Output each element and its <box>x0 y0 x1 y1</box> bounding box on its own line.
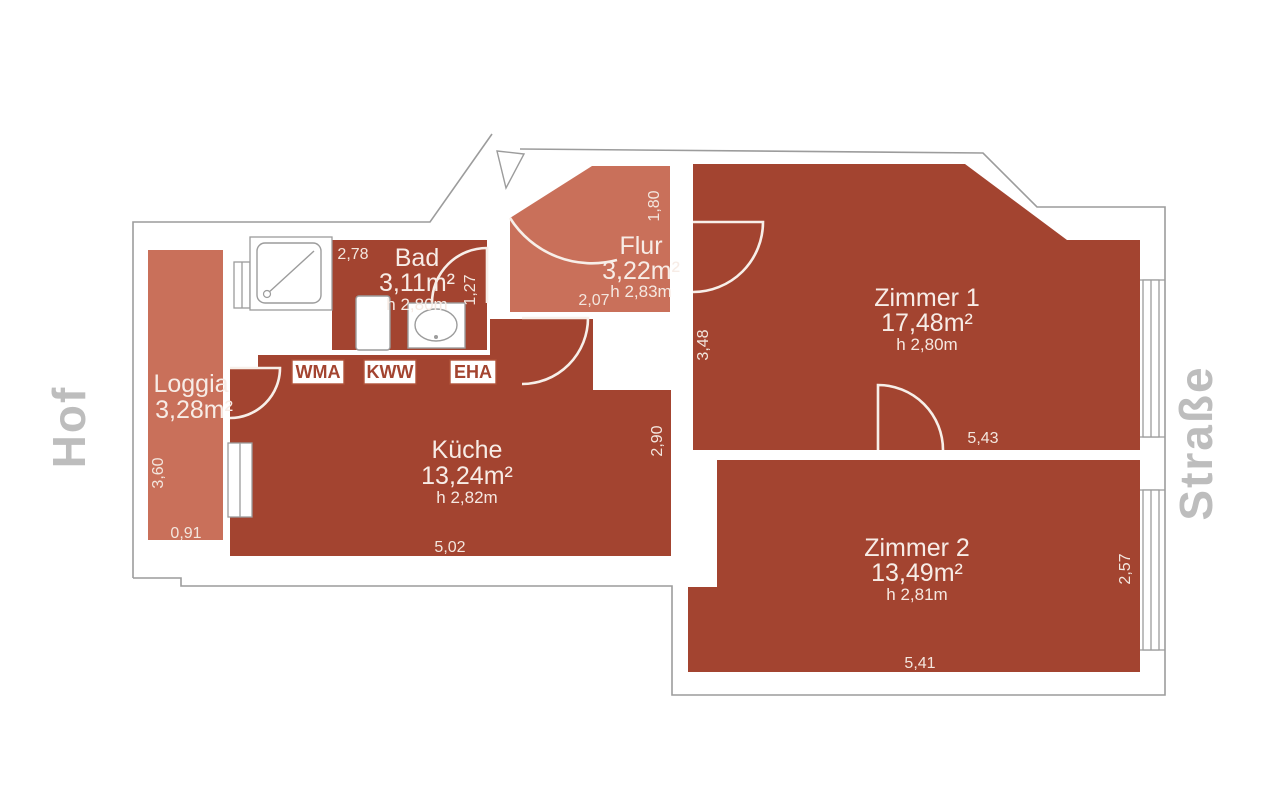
room-label-loggia-name: Loggia <box>153 370 228 398</box>
entrance-marker-icon <box>497 151 524 188</box>
room-label-loggia-area: 3,28m² <box>155 396 233 424</box>
room-label-flur-name: Flur <box>619 232 662 260</box>
room-label-zimmer1-area: 17,48m² <box>881 309 973 337</box>
toilet-icon <box>356 296 390 350</box>
window-loggia-top <box>234 262 250 308</box>
appliance-label-wma: WMA <box>296 362 341 382</box>
room-label-bad-area: 3,11m² <box>379 269 455 297</box>
appliance-tags: WMA KWW EHA <box>292 360 496 384</box>
dim-label-flur-v: 1,80 <box>646 190 663 221</box>
hof-label: Hof <box>43 386 95 469</box>
dim-label-zimmer2-h: 5,41 <box>904 655 935 672</box>
dim-label-flur-h: 2,07 <box>578 292 609 309</box>
floorplan-canvas: WMA KWW EHA Loggia 3,28m² Bad 3,11m² h 2… <box>0 0 1280 808</box>
room-label-zimmer1-name: Zimmer 1 <box>874 284 980 312</box>
appliance-box-kww: KWW <box>364 360 416 384</box>
dim-label-zimmer1-v: 3,48 <box>695 329 712 360</box>
room-label-bad-name: Bad <box>395 244 439 272</box>
dim-label-kueche-h: 5,02 <box>434 539 465 556</box>
window-zimmer1 <box>1140 280 1165 437</box>
room-label-zimmer2-area: 13,49m² <box>871 559 963 587</box>
room-label-kueche-name: Küche <box>432 436 503 464</box>
dim-label-loggia-v: 3,60 <box>150 457 167 488</box>
dim-label-bad-v: 1,27 <box>462 274 479 305</box>
appliance-box-wma: WMA <box>292 360 344 384</box>
window-loggia-kueche <box>228 443 252 517</box>
room-label-bad-height: h 2,80m <box>386 295 447 314</box>
dim-label-zimmer1-h: 5,43 <box>967 430 998 447</box>
room-label-kueche-height: h 2,82m <box>436 488 497 507</box>
room-label-flur-area: 3,22m² <box>602 257 680 285</box>
room-label-zimmer2-height: h 2,81m <box>886 585 947 604</box>
dim-label-kueche-v: 2,90 <box>649 425 666 456</box>
dim-label-zimmer2-v: 2,57 <box>1117 553 1134 584</box>
room-label-flur-height: h 2,83m <box>610 282 671 301</box>
appliance-label-kww: KWW <box>367 362 414 382</box>
room-label-zimmer1-height: h 2,80m <box>896 335 957 354</box>
appliance-box-eha: EHA <box>450 360 496 384</box>
appliance-label-eha: EHA <box>454 362 492 382</box>
dim-label-loggia-h: 0,91 <box>170 525 201 542</box>
floorplan-page: WMA KWW EHA Loggia 3,28m² Bad 3,11m² h 2… <box>0 0 1280 808</box>
dim-label-bad-h: 2,78 <box>337 246 368 263</box>
strasse-label: Straße <box>1170 365 1222 520</box>
shower-icon <box>257 243 321 303</box>
room-label-zimmer2-name: Zimmer 2 <box>864 534 970 562</box>
window-zimmer2 <box>1140 490 1165 650</box>
room-label-kueche-area: 13,24m² <box>421 462 513 490</box>
